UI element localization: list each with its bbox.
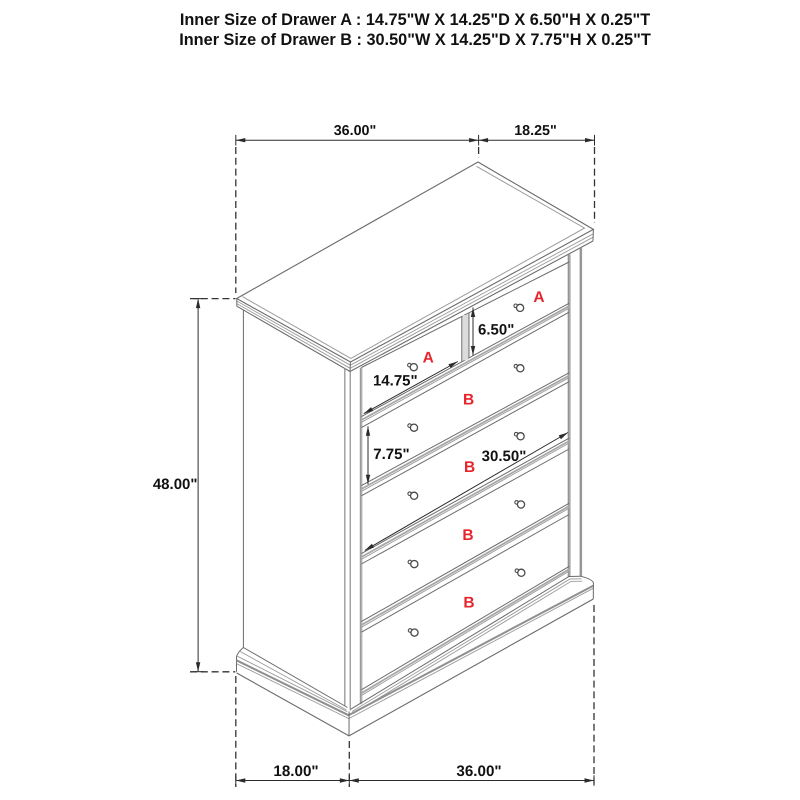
svg-text:B: B (464, 459, 475, 476)
svg-text:B: B (462, 527, 473, 544)
svg-text:48.00": 48.00" (153, 476, 198, 493)
svg-text:7.75": 7.75" (373, 446, 409, 463)
svg-text:B: B (463, 595, 474, 612)
svg-text:30.50": 30.50" (482, 448, 527, 465)
svg-text:6.50": 6.50" (478, 321, 514, 338)
svg-text:36.00": 36.00" (456, 763, 501, 780)
svg-text:B: B (463, 392, 474, 409)
svg-text:A: A (423, 350, 434, 367)
svg-text:A: A (533, 289, 544, 306)
svg-text:36.00": 36.00" (334, 123, 377, 139)
svg-text:18.25": 18.25" (514, 123, 557, 139)
svg-text:18.00": 18.00" (273, 763, 318, 780)
svg-text:14.75": 14.75" (373, 373, 418, 390)
